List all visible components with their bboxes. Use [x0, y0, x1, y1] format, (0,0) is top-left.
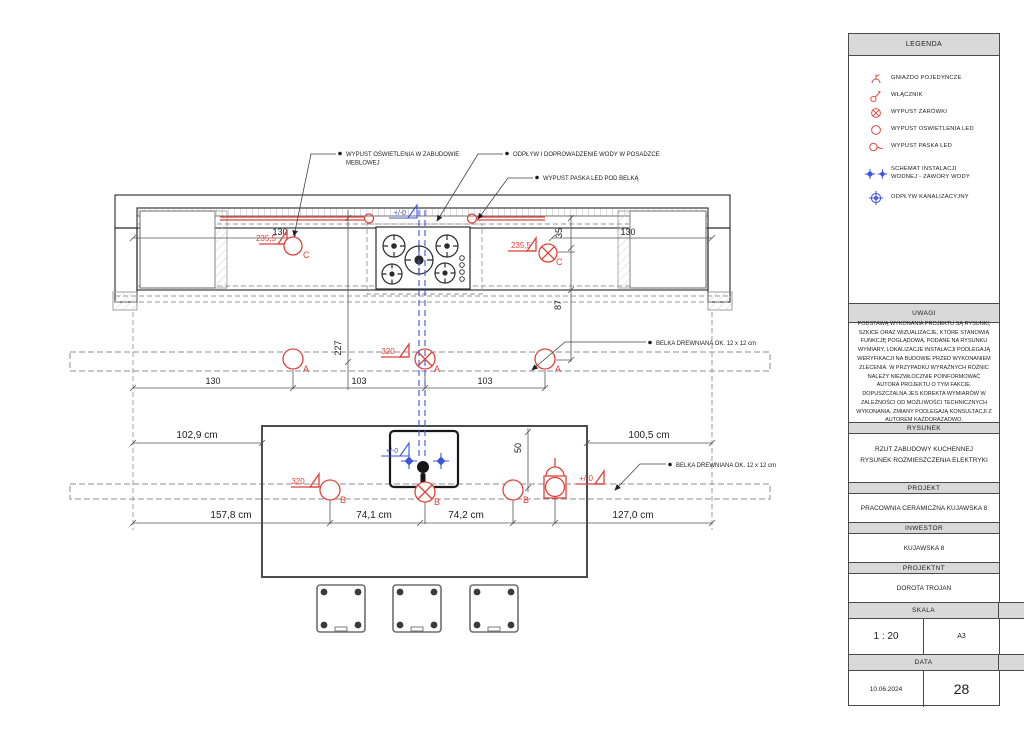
dim-742: 74,2 cm [448, 510, 484, 521]
counter-run [115, 208, 730, 302]
format-value: A3 [924, 619, 999, 654]
level-zero-top: +/-0 [394, 210, 406, 217]
stool [317, 585, 365, 632]
water-valve-symbol [433, 453, 449, 469]
legend-item: GNIAZDO POJEDYŃCZE [861, 72, 995, 86]
level-socket: +/-0 [579, 474, 594, 483]
strona-value: 28 [924, 671, 999, 707]
dim-1270: 127,0 cm [612, 510, 653, 521]
legend-item: WYPUST PASKA LED [861, 140, 995, 154]
cabinet-left [140, 211, 227, 288]
socket-symbol [544, 458, 566, 498]
legend-item: WŁĄCZNIK [861, 89, 995, 103]
dim-35: 35 [554, 228, 564, 238]
inwestor-value: KUJAWSKA 8 [849, 534, 999, 562]
inwestor-header: INWESTOR [849, 522, 999, 534]
marker-a: A [555, 364, 561, 374]
marker-b: B [434, 497, 440, 507]
level-c-left: 235,5 [256, 234, 277, 243]
callout-beam-lower: BELKA DREWNIANA OK. 12 x 12 cm [676, 463, 776, 469]
led-outlet-symbol-a [283, 349, 303, 369]
dim-741: 74,1 cm [356, 510, 392, 521]
burner [383, 235, 405, 257]
marker-a: A [303, 364, 309, 374]
rysunek-value: RZUT ZABUDOWY KUCHENNEJ RYSUNEK ROZMIESZ… [849, 434, 999, 482]
dim-103: 103 [477, 376, 492, 386]
water-valve-symbol [401, 453, 417, 469]
led-outlet-icon [861, 123, 891, 137]
level-zero-sink: +/-0 [386, 448, 398, 455]
bar-stools [317, 585, 518, 632]
projektant-value: DOROTA TROJAN [849, 574, 999, 602]
dim-227: 227 [333, 340, 343, 355]
dim-island-top-left: 102,9 cm [176, 430, 217, 441]
socket-single-icon [861, 72, 891, 86]
bulb-outlet-symbol-b [415, 482, 435, 502]
stool [470, 585, 518, 632]
kitchen-electrical-plan: 130 130 130 103 103 102,9 cm 100,5 cm 15… [0, 0, 845, 741]
data-header: DATA [849, 654, 999, 671]
led-outlet-symbol-b [503, 480, 523, 500]
dim-87: 87 [553, 300, 563, 310]
callout-water: ODPŁYW I DOPROWADZENIE WODY W POSADZCE [513, 152, 660, 158]
projekt-value: PRACOWNIA CERAMICZNA KUJAWSKA 8 [849, 494, 999, 522]
bulb-outlet-symbol-c [539, 244, 557, 262]
marker-b: B [340, 495, 346, 505]
projekt-header: PROJEKT [849, 482, 999, 494]
legend-item: WYPUST ŻARÓWKI [861, 106, 995, 120]
burner [382, 264, 402, 284]
marker-a: A [434, 364, 440, 374]
legend-header: LEGENDA [849, 34, 999, 56]
callout-led-strip: WYPUST PASKA LED POD BELKĄ [543, 176, 639, 182]
marker-c: C [556, 257, 563, 267]
callout-led-cabinet: WYPUST OŚWIETLENIA W ZABUDOWIE [346, 150, 459, 158]
dim-103: 103 [351, 376, 366, 386]
callout-beam-upper: BELKA DREWNIANA OK. 12 x 12 cm [656, 341, 756, 347]
legend-item: SCHEMAT INSTALACJI WODNEJ - ZAWORY WODY [861, 166, 995, 182]
level-a: 320 [381, 347, 395, 356]
legend-item: ODPŁYW KANALIZACYJNY [861, 190, 995, 206]
title-block-panel: LEGENDA GNIAZDO POJEDYŃCZE WŁĄCZNIK WYPU… [848, 33, 1000, 706]
skala-header: SKALA [849, 602, 999, 619]
stool [393, 585, 441, 632]
level-b: 320 [291, 477, 305, 486]
dim-1578: 157,8 cm [210, 510, 251, 521]
led-strip-outlet-icon [861, 140, 891, 154]
svg-text:MEBLOWEJ: MEBLOWEJ [346, 161, 380, 167]
led-outlet-symbol-b [320, 480, 340, 500]
data-value: 10.06.2024 [849, 671, 924, 707]
uwagi-text: PODSTAWĄ WYKONANIA PROJEKTU SĄ RYSUNKI, … [849, 323, 999, 422]
dim-50: 50 [513, 443, 523, 453]
burner [435, 263, 455, 283]
projektant-header: PROJEKTNT [849, 562, 999, 574]
cooktop [376, 227, 470, 289]
led-outlet-symbol-c [284, 237, 302, 255]
marker-c: C [303, 250, 310, 260]
skala-value: 1 : 20 [849, 619, 924, 654]
callouts: WYPUST OŚWIETLENIA W ZABUDOWIE MEBLOWEJ … [294, 150, 776, 490]
drawing-sheet: 130 130 130 103 103 102,9 cm 100,5 cm 15… [0, 0, 1024, 741]
format-header: FORMAT [999, 602, 1024, 619]
legend-item: WYPUST OSWIETLENIA LED [861, 123, 995, 137]
bulb-outlet-icon [861, 106, 891, 120]
cabinet-right [618, 211, 706, 288]
dim-island-top-right: 100,5 cm [628, 430, 669, 441]
dim-130: 130 [205, 376, 220, 386]
burner [436, 235, 458, 257]
marker-b: B [523, 495, 529, 505]
sewage-drain-icon [861, 190, 891, 206]
switch-icon [861, 89, 891, 103]
legend-body: GNIAZDO POJEDYŃCZE WŁĄCZNIK WYPUST ŻARÓW… [849, 56, 999, 303]
strona-header: STRONA [999, 654, 1024, 671]
water-valves-icon [861, 167, 891, 181]
dim-cab-right: 130 [620, 227, 635, 237]
rysunek-header: RYSUNEK [849, 422, 999, 434]
